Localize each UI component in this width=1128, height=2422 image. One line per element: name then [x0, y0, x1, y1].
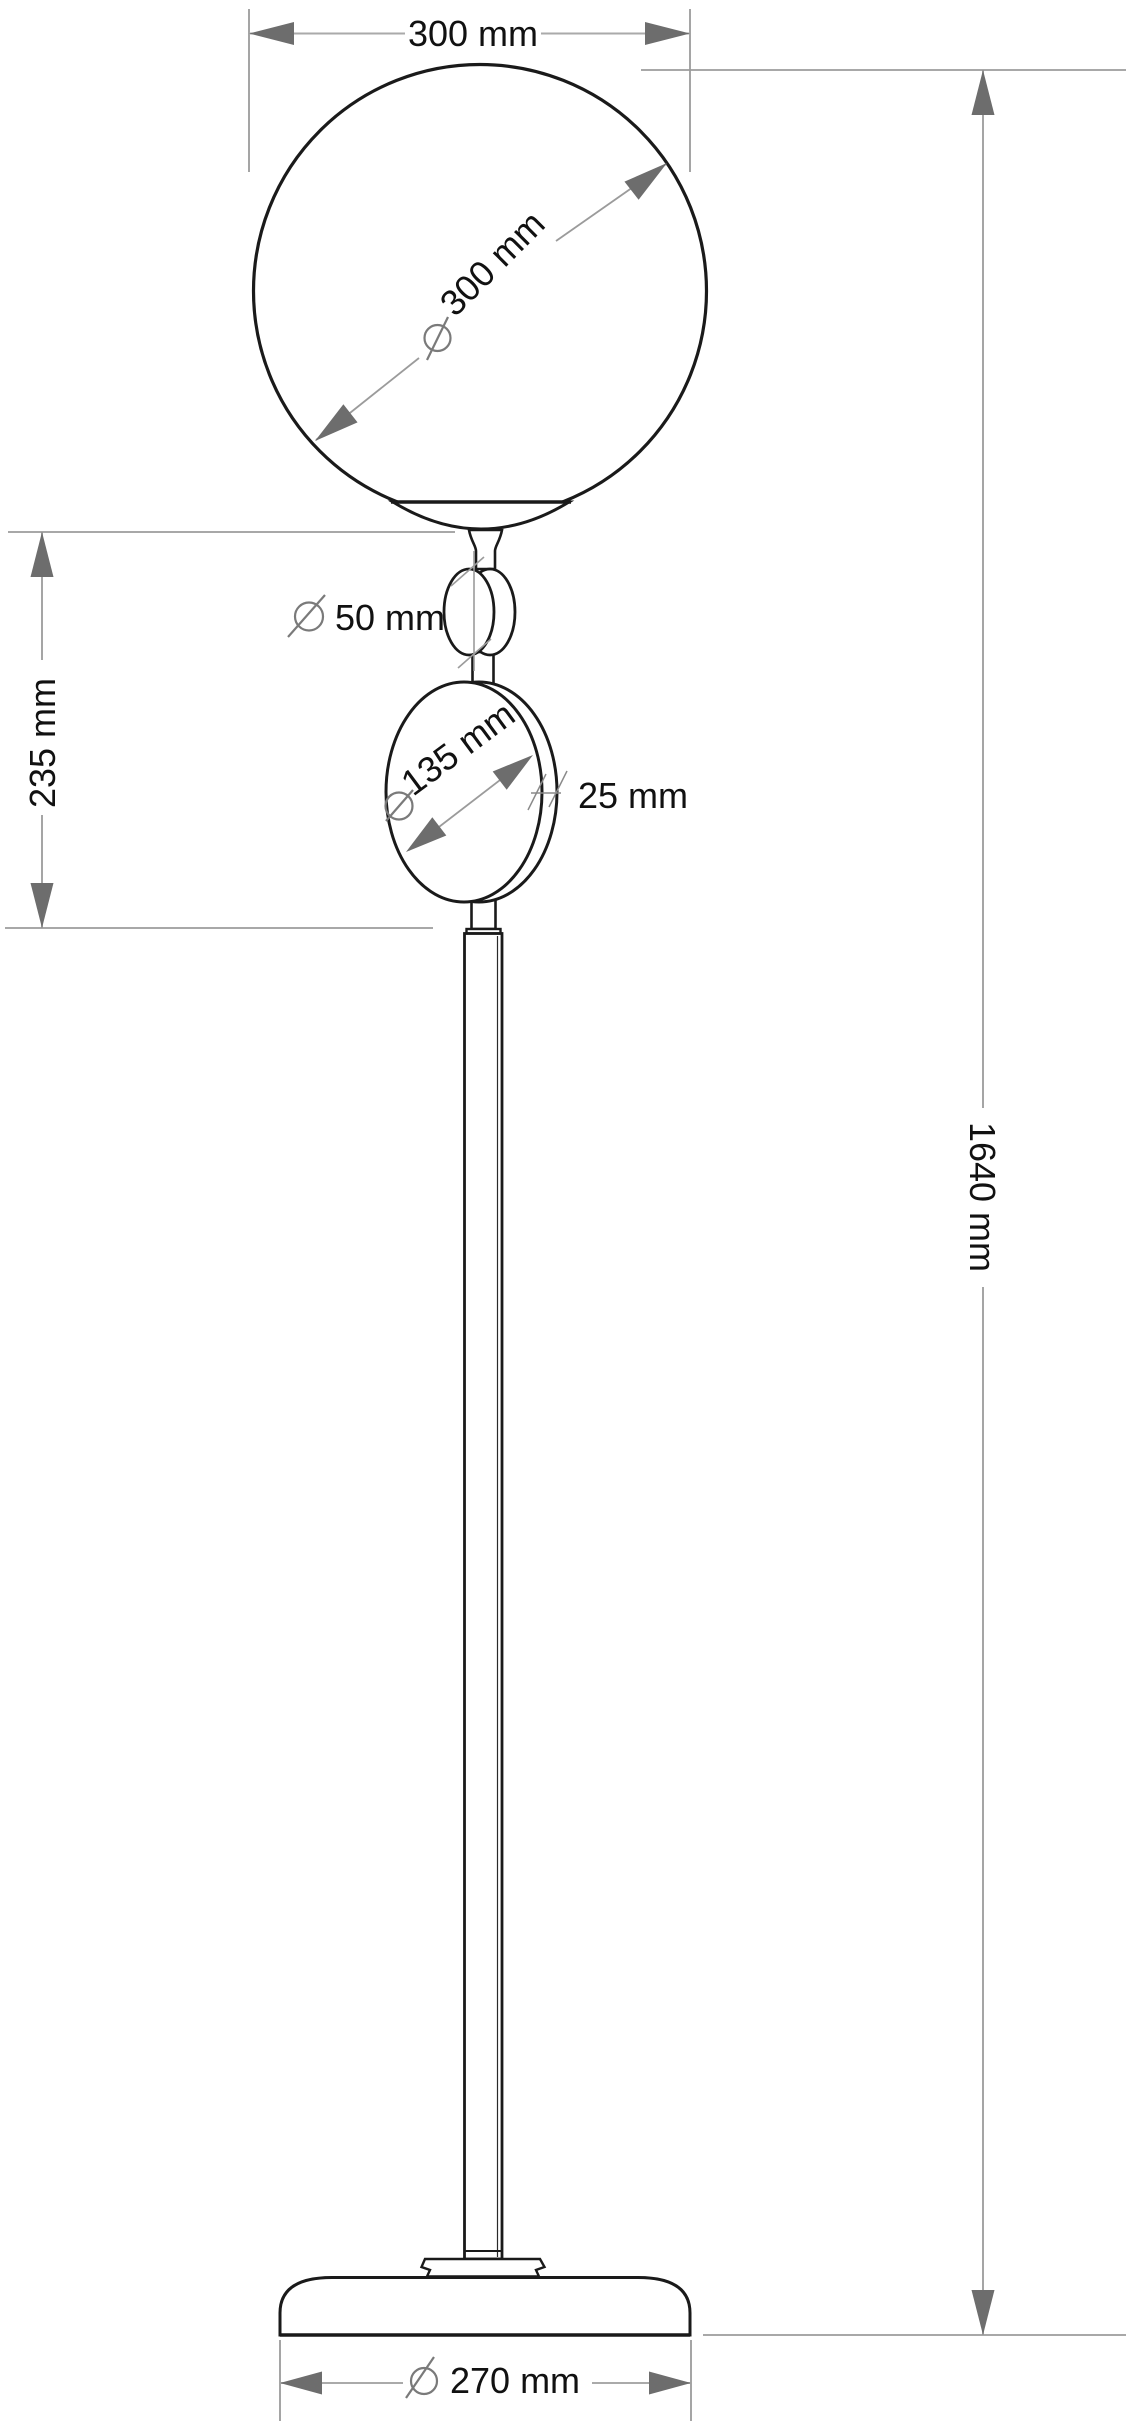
lamp-outline — [254, 65, 707, 2336]
dim-label-disc-thickness: 25 mm — [578, 775, 688, 816]
technical-drawing-page: 300 mm 1640 mm 235 mm — [0, 0, 1128, 2422]
diameter-symbol-icon — [295, 603, 323, 631]
pole — [465, 934, 503, 2260]
arrowhead-up-icon — [31, 532, 54, 577]
base — [280, 2278, 690, 2336]
dim-base-diameter: 270 mm — [280, 2340, 691, 2421]
dim-total-height: 1640 mm — [641, 70, 1126, 2335]
arrowhead-right-icon — [649, 2372, 691, 2395]
arrowhead-left-icon — [249, 22, 294, 45]
dim-label-base-diameter: 270 mm — [450, 2360, 580, 2401]
arrowhead-down-icon — [31, 883, 54, 928]
arrowhead-up-icon — [972, 70, 995, 115]
dim-label-upper-section: 235 mm — [22, 678, 63, 808]
base-flange — [422, 2259, 545, 2277]
floor-lamp-drawing: 300 mm 1640 mm 235 mm — [0, 0, 1128, 2422]
neck-middle — [473, 652, 494, 684]
dim-label-globe-width: 300 mm — [408, 13, 538, 54]
arrowhead-right-icon — [645, 22, 690, 45]
dim-label-total-height: 1640 mm — [962, 1122, 1003, 1272]
dim-label-ball-diameter: 50 mm — [335, 597, 445, 638]
globe-collar — [393, 502, 569, 529]
arrowhead-down-icon — [972, 2290, 995, 2335]
dim-upper-section-height: 235 mm — [5, 532, 455, 928]
arrowhead-left-icon — [280, 2372, 322, 2395]
